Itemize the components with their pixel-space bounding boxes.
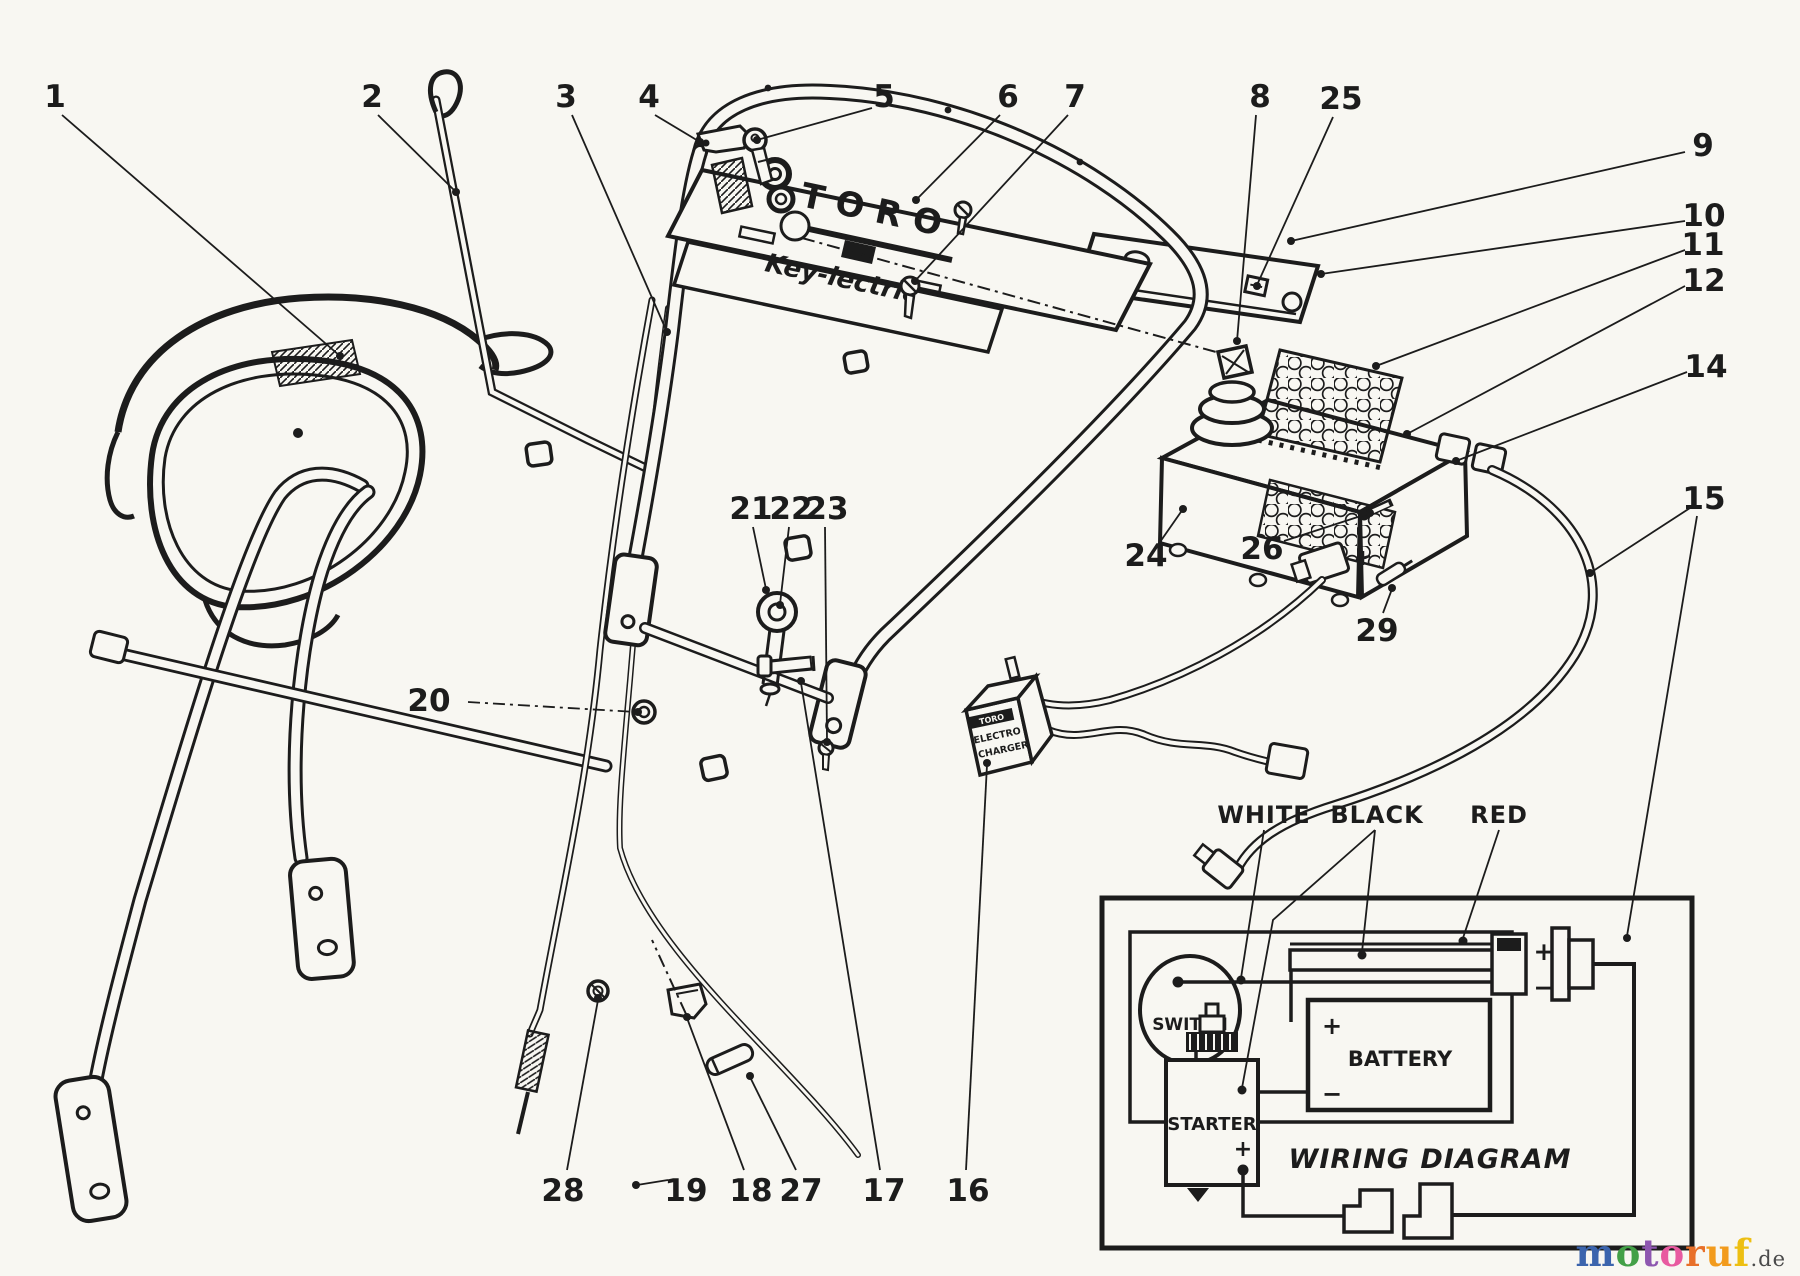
wire-label-red: RED bbox=[1470, 801, 1528, 829]
wiring-diagram: SWITCH BATTERY + − + − STARTER + bbox=[1102, 801, 1692, 1248]
callout-18: 18 bbox=[729, 1173, 772, 1209]
callout-6: 6 bbox=[997, 79, 1019, 115]
control-rod bbox=[430, 72, 650, 470]
motoruf-letter: o bbox=[1659, 1231, 1685, 1275]
callout-2: 2 bbox=[361, 79, 383, 115]
motoruf-suffix: .de bbox=[1750, 1247, 1786, 1271]
charger-cable bbox=[1048, 730, 1308, 779]
callout-4: 4 bbox=[638, 79, 660, 115]
callout-14: 14 bbox=[1684, 349, 1727, 385]
battery-plus: + bbox=[1322, 1012, 1342, 1040]
callout-20: 20 bbox=[407, 683, 450, 719]
shield-stamp-patch bbox=[272, 340, 360, 386]
callout-11: 11 bbox=[1681, 227, 1724, 263]
battery-label: BATTERY bbox=[1348, 1047, 1453, 1071]
motoruf-letter: u bbox=[1706, 1231, 1734, 1275]
motoruf-letter: r bbox=[1685, 1231, 1706, 1275]
callout-29: 29 bbox=[1355, 613, 1398, 649]
cable-spring bbox=[516, 1031, 549, 1092]
callout-12: 12 bbox=[1682, 263, 1725, 299]
battery-minus: − bbox=[1322, 1080, 1342, 1108]
pivot-bolt bbox=[758, 656, 814, 676]
parts-diagram-canvas: TORO Key-lectric bbox=[0, 0, 1800, 1276]
motoruf-letter: o bbox=[1616, 1231, 1642, 1275]
wire-label-white: WHITE bbox=[1217, 801, 1310, 829]
key-bezel-washer bbox=[769, 187, 793, 211]
callout-7: 7 bbox=[1064, 79, 1086, 115]
callout-17: 17 bbox=[862, 1173, 905, 1209]
callout-5: 5 bbox=[873, 79, 895, 115]
motoruf-letter: t bbox=[1641, 1231, 1659, 1275]
callout-26: 26 bbox=[1240, 531, 1283, 567]
starter-plus: + bbox=[1234, 1137, 1252, 1162]
callout-24: 24 bbox=[1124, 538, 1167, 574]
lower-handle-bracket-left bbox=[53, 1075, 129, 1224]
parts-diagram-page: TORO Key-lectric bbox=[0, 0, 1800, 1276]
motoruf-logo[interactable]: motoruf.de bbox=[1576, 1235, 1787, 1272]
charger-box: TORO ELECTRO CHARGER bbox=[966, 657, 1052, 775]
callout-16: 16 bbox=[946, 1173, 989, 1209]
clevis-pin bbox=[704, 1042, 755, 1077]
wiring-diagram-title: WIRING DIAGRAM bbox=[1289, 1144, 1572, 1175]
callout-19: 19 bbox=[664, 1173, 707, 1209]
motoruf-letter: m bbox=[1576, 1231, 1616, 1275]
charger-plug-prong bbox=[1006, 657, 1020, 679]
lower-handle-bracket-near bbox=[289, 858, 355, 980]
starter-label: STARTER bbox=[1167, 1114, 1256, 1135]
callout-8: 8 bbox=[1249, 79, 1271, 115]
battery-box bbox=[1160, 346, 1506, 606]
harness-cable bbox=[1022, 580, 1322, 705]
callout-25: 25 bbox=[1319, 81, 1362, 117]
ignition-switch bbox=[1192, 346, 1272, 445]
callout-28: 28 bbox=[541, 1173, 584, 1209]
upper-handle-bracket-right bbox=[808, 658, 867, 749]
callout-1: 1 bbox=[44, 79, 66, 115]
callout-23: 23 bbox=[805, 491, 848, 527]
callout-21: 21 bbox=[729, 491, 772, 527]
callout-15: 15 bbox=[1682, 481, 1725, 517]
callout-27: 27 bbox=[779, 1173, 822, 1209]
panel-key-hole bbox=[781, 212, 809, 240]
callout-9: 9 bbox=[1692, 128, 1714, 164]
fuse-holder bbox=[1552, 928, 1569, 1000]
wire-label-black: BLACK bbox=[1330, 801, 1424, 829]
callout-3: 3 bbox=[555, 79, 577, 115]
motoruf-letter: f bbox=[1734, 1231, 1751, 1275]
